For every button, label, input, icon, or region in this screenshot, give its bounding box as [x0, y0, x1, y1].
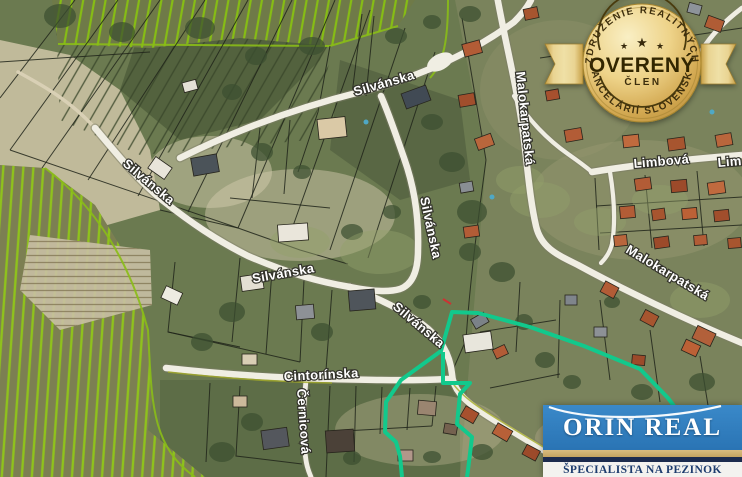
- street-label-limbova-edge: Lim: [717, 153, 742, 170]
- logo-tan-band: [543, 450, 742, 457]
- logo-blue-panel: ORIN REAL: [543, 405, 742, 450]
- orin-real-logo: ORIN REAL ŠPECIALISTA NA PEZINOK: [543, 405, 742, 477]
- swoosh-icon: [543, 405, 728, 421]
- star-icon: ★: [620, 42, 628, 52]
- logo-subtitle: ŠPECIALISTA NA PEZINOK: [563, 464, 722, 476]
- badge-subtitle: ČLEN: [624, 75, 661, 88]
- star-icon: ★: [656, 42, 664, 52]
- logo-subtitle-band: ŠPECIALISTA NA PEZINOK: [543, 462, 742, 477]
- badge-title: OVERENÝ: [589, 53, 695, 77]
- map-screenshot: Silvánska Silvánska Silvánska Silvánska …: [0, 0, 742, 477]
- star-icon: ★: [636, 36, 648, 51]
